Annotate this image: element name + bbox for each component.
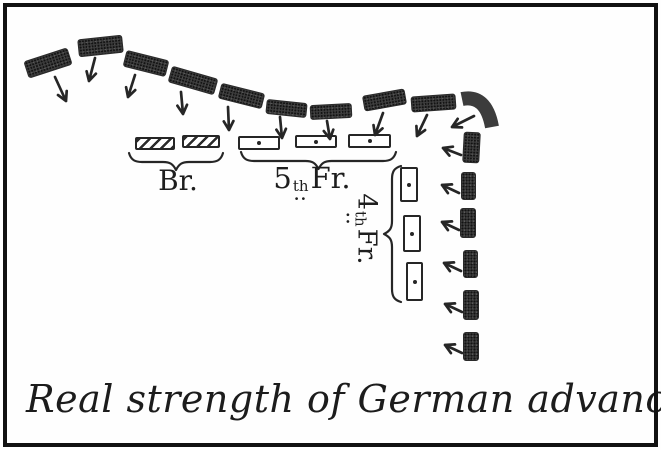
german-front-unit	[23, 47, 72, 78]
german-advance-arrow-down	[87, 58, 96, 81]
brace-4th-french	[384, 166, 401, 302]
french-5th-unit	[238, 136, 280, 150]
german-flank-unit	[463, 332, 479, 361]
german-front-unit	[265, 98, 307, 117]
label-4th-french-number: 4	[352, 193, 382, 210]
french-5th-unit	[348, 134, 391, 148]
german-advance-arrow-left	[442, 184, 459, 193]
german-advance-arrow-down	[126, 75, 135, 97]
german-advance-arrow-left	[442, 221, 459, 230]
german-flank-unit	[463, 290, 479, 320]
german-advance-arrow-down	[177, 92, 187, 114]
german-advance-arrow-down	[55, 77, 67, 101]
german-flank-unit	[462, 131, 481, 163]
unit-marker-dot	[407, 183, 411, 187]
abbreviation-dots: ..	[346, 212, 355, 225]
british-unit	[182, 135, 220, 148]
label-4th-french-name: Fr.	[352, 229, 382, 265]
german-advance-arrow-left	[443, 147, 461, 156]
abbreviation-dots: ..	[294, 191, 307, 200]
unit-marker-dot	[257, 141, 261, 145]
german-advance-arrow-left	[445, 344, 462, 353]
unit-marker-dot	[314, 140, 318, 144]
german-front-unit	[168, 65, 219, 95]
german-flank-unit	[463, 250, 478, 278]
german-front-unit	[123, 49, 170, 76]
german-advance-arrow-down	[374, 113, 384, 135]
label-5th-french-number: 5	[273, 161, 291, 195]
german-corner-unit	[462, 98, 492, 127]
ordinal-suffix: th..	[346, 211, 365, 227]
german-advance-arrow-down	[416, 115, 427, 136]
diagram-caption: Real strength of German advance	[26, 377, 638, 421]
german-advance-arrow-down	[276, 117, 286, 138]
french-4th-unit	[400, 167, 418, 202]
german-front-unit	[310, 102, 353, 119]
french-4th-unit	[406, 262, 423, 301]
german-flank-unit	[460, 208, 476, 238]
german-front-unit	[77, 35, 124, 58]
german-front-unit	[410, 93, 456, 112]
military-diagram: Br. 5th..Fr. 4th..Fr. Real strength of G…	[0, 0, 661, 450]
german-front-unit	[217, 83, 265, 109]
unit-marker-dot	[368, 139, 372, 143]
german-front-unit	[361, 88, 406, 111]
german-advance-arrow-left	[445, 303, 462, 312]
german-advance-arrow-down	[452, 116, 474, 127]
british-unit	[135, 137, 175, 150]
french-5th-unit	[295, 135, 337, 148]
ordinal-suffix: th..	[293, 182, 309, 201]
label-4th-french: 4th..Fr.	[346, 182, 382, 277]
unit-marker-dot	[410, 232, 414, 236]
unit-marker-dot	[413, 280, 417, 284]
german-flank-unit	[461, 172, 476, 200]
german-advance-arrow-left	[444, 262, 461, 271]
label-british: Br.	[147, 164, 209, 197]
german-advance-arrow-down	[224, 107, 234, 130]
french-4th-unit	[403, 215, 421, 252]
